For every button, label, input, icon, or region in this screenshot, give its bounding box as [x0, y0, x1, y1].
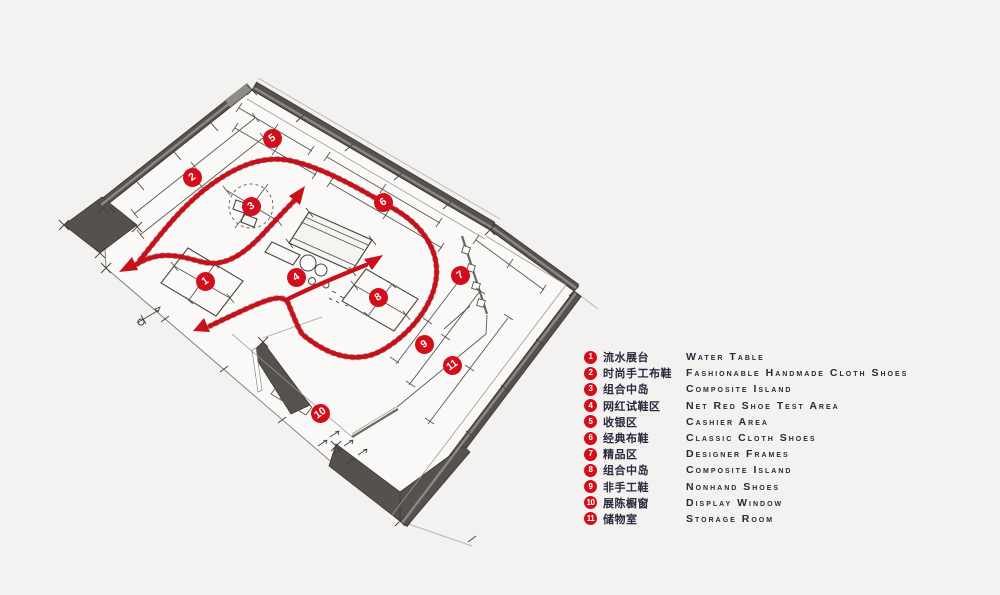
plan-area-marker-number: 11	[444, 358, 459, 373]
legend-label-zh: 收银区	[603, 414, 686, 430]
legend-label-zh: 经典布鞋	[603, 430, 686, 446]
legend-number-badge: 2	[584, 367, 597, 380]
legend-label-en: Storage Room	[686, 513, 774, 525]
legend-number-badge: 5	[584, 415, 597, 428]
legend-label-zh: 展陈橱窗	[603, 495, 686, 511]
plan-area-marker-number: 8	[373, 291, 384, 303]
plan-area-marker-number: 2	[187, 171, 198, 183]
legend-label-zh: 网红试鞋区	[603, 398, 686, 414]
legend-row: 1 流水展台 Water Table	[584, 349, 908, 365]
legend-label-zh: 精品区	[603, 446, 686, 462]
legend-label-en: Composite Island	[686, 383, 792, 395]
legend-row: 10 展陈橱窗 Display Window	[584, 495, 908, 511]
plan-area-marker-number: 10	[312, 405, 328, 420]
legend-label-zh: 储物室	[603, 511, 686, 527]
plan-area-marker-number: 3	[246, 200, 257, 212]
store-floor-plan-page: 1 2 3 4 5 6 7 8 9 10 11 1 流水展台 Water Tab…	[0, 0, 1000, 595]
legend-label-zh: 组合中岛	[603, 381, 686, 397]
plan-area-marker-number: 9	[419, 338, 430, 350]
legend-number-badge: 3	[584, 383, 597, 396]
legend-number-badge: 8	[584, 464, 597, 477]
legend-label-en: Cashier Area	[686, 416, 769, 428]
plan-area-marker-number: 1	[200, 275, 211, 287]
legend-row: 11 储物室 Storage Room	[584, 511, 908, 527]
legend-number-badge: 6	[584, 432, 597, 445]
plan-area-marker-number: 5	[267, 132, 278, 144]
legend-label-en: Classic Cloth Shoes	[686, 432, 817, 444]
legend-row: 3 组合中岛 Composite Island	[584, 381, 908, 397]
legend: 1 流水展台 Water Table 2 时尚手工布鞋 Fashionable …	[584, 349, 908, 527]
legend-row: 5 收银区 Cashier Area	[584, 414, 908, 430]
legend-label-zh: 流水展台	[603, 349, 686, 365]
legend-number-badge: 1	[584, 351, 597, 364]
legend-number-badge: 9	[584, 480, 597, 493]
legend-label-en: Fashionable Handmade Cloth Shoes	[686, 367, 908, 379]
legend-label-en: Nonhand Shoes	[686, 481, 780, 493]
legend-number-badge: 11	[584, 512, 597, 525]
legend-number-badge: 10	[584, 496, 597, 509]
legend-label-en: Water Table	[686, 351, 765, 363]
legend-label-zh: 组合中岛	[603, 462, 686, 478]
legend-label-zh: 时尚手工布鞋	[603, 365, 686, 381]
legend-number-badge: 4	[584, 399, 597, 412]
legend-row: 6 经典布鞋 Classic Cloth Shoes	[584, 430, 908, 446]
legend-row: 9 非手工鞋 Nonhand Shoes	[584, 479, 908, 495]
legend-row: 2 时尚手工布鞋 Fashionable Handmade Cloth Shoe…	[584, 365, 908, 381]
legend-number-badge: 7	[584, 448, 597, 461]
legend-label-en: Designer Frames	[686, 448, 790, 460]
legend-label-en: Net Red Shoe Test Area	[686, 400, 840, 412]
legend-label-zh: 非手工鞋	[603, 479, 686, 495]
plan-area-marker-number: 7	[455, 269, 466, 281]
legend-row: 4 网红试鞋区 Net Red Shoe Test Area	[584, 398, 908, 414]
plan-area-marker-number: 6	[378, 196, 389, 208]
legend-label-en: Composite Island	[686, 464, 792, 476]
legend-row: 7 精品区 Designer Frames	[584, 446, 908, 462]
legend-row: 8 组合中岛 Composite Island	[584, 462, 908, 478]
plan-area-marker-number: 4	[291, 271, 302, 283]
legend-label-en: Display Window	[686, 497, 783, 509]
